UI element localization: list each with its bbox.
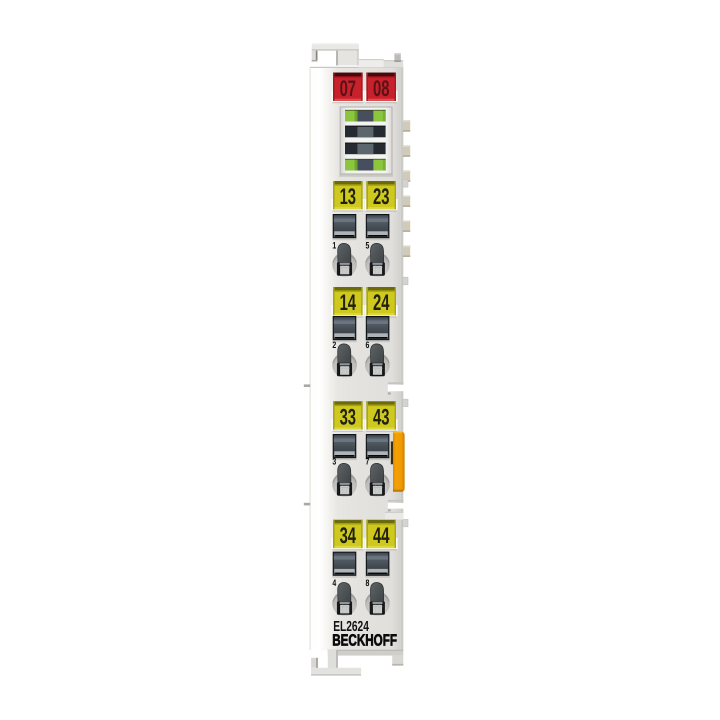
- svg-text:44: 44: [373, 523, 390, 548]
- svg-text:3: 3: [332, 455, 336, 466]
- svg-text:24: 24: [373, 290, 390, 315]
- svg-text:6: 6: [365, 339, 369, 350]
- svg-text:23: 23: [373, 184, 389, 209]
- svg-text:07: 07: [340, 76, 356, 101]
- svg-text:13: 13: [340, 184, 356, 209]
- svg-text:34: 34: [340, 523, 357, 548]
- svg-text:14: 14: [340, 290, 357, 315]
- svg-text:BECKHOFF: BECKHOFF: [332, 632, 397, 650]
- svg-text:8: 8: [365, 577, 369, 588]
- svg-text:4: 4: [332, 577, 336, 588]
- svg-text:08: 08: [373, 76, 389, 101]
- svg-text:7: 7: [365, 455, 369, 466]
- svg-text:33: 33: [340, 405, 356, 430]
- svg-text:2: 2: [332, 339, 336, 350]
- svg-text:1: 1: [332, 239, 336, 250]
- svg-text:43: 43: [373, 405, 389, 430]
- svg-text:5: 5: [365, 239, 369, 250]
